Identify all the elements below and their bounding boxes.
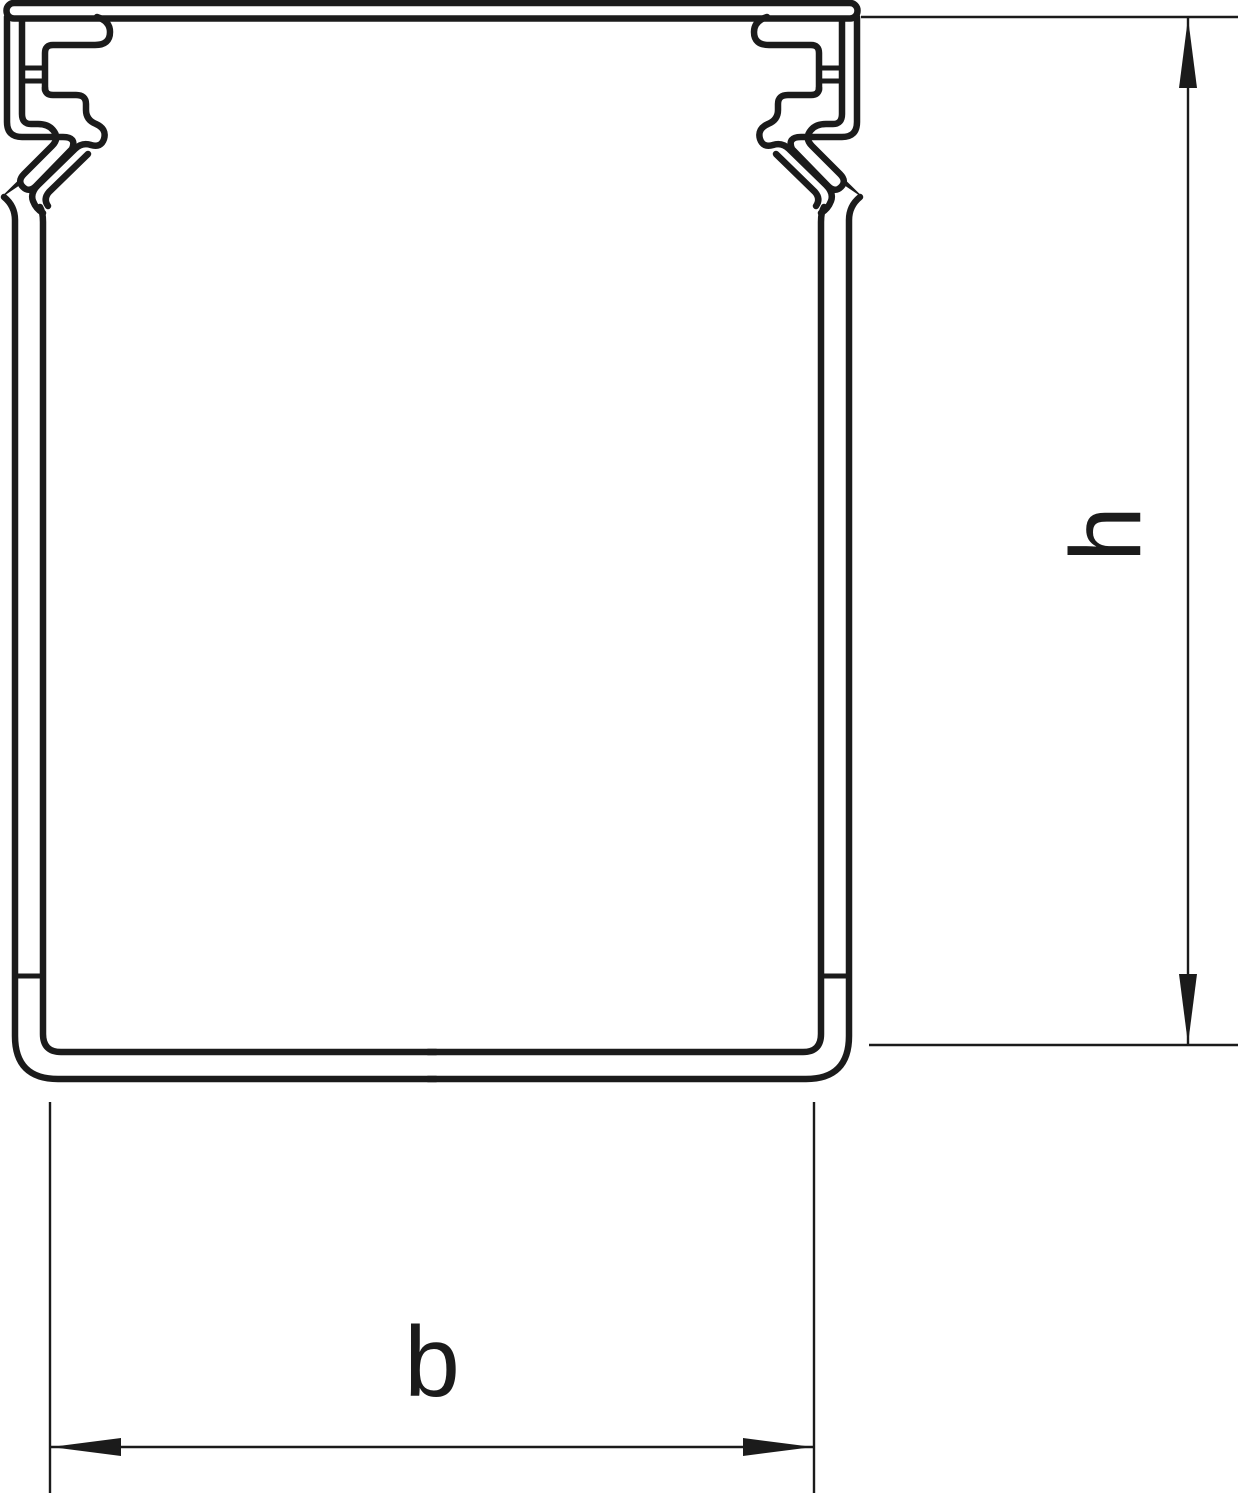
wall-lip xyxy=(45,17,110,90)
duct-cross-section-drawing: h b xyxy=(0,0,1241,1500)
right-side-assembly xyxy=(428,17,861,1079)
arrowhead-up-icon xyxy=(1179,18,1197,88)
wall-inner-line xyxy=(40,207,436,1052)
duct-profile xyxy=(3,3,861,1079)
dimension-b: b xyxy=(50,1102,814,1493)
left-side-assembly xyxy=(3,17,436,1079)
h-dimension-label: h xyxy=(1050,506,1162,562)
wall-outer-line xyxy=(4,197,436,1079)
arrowhead-down-icon xyxy=(1179,974,1197,1044)
arrowhead-right-icon xyxy=(743,1438,813,1456)
b-dimension-label: b xyxy=(404,1306,460,1418)
technical-drawing-canvas: h b xyxy=(0,0,1241,1500)
arrowhead-left-icon xyxy=(51,1438,121,1456)
dimension-h: h xyxy=(861,17,1238,1045)
cover-plate xyxy=(7,3,858,19)
